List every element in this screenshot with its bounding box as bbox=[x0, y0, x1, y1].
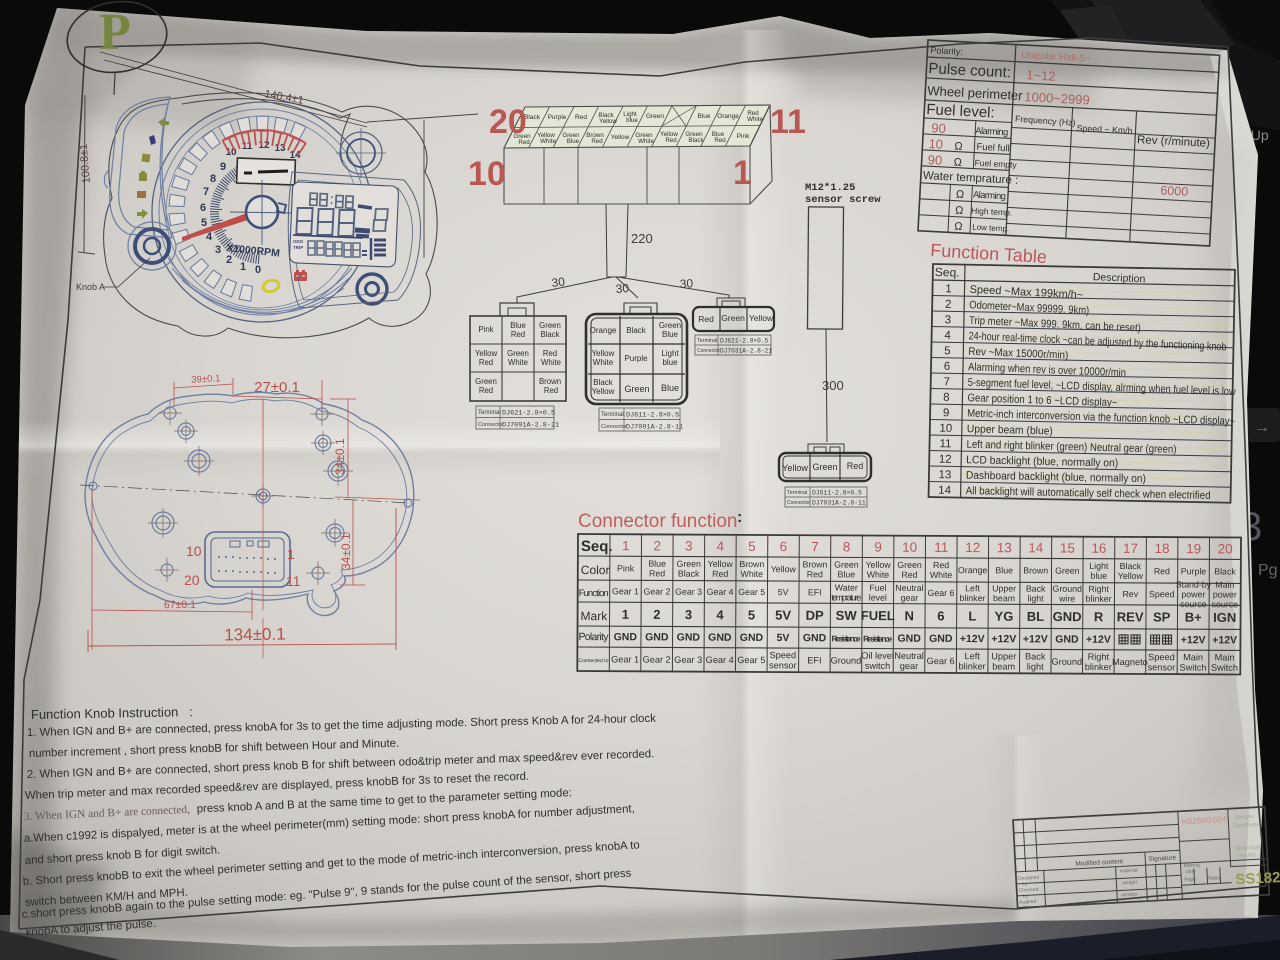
svg-text:White: White bbox=[867, 570, 890, 580]
svg-text:GND: GND bbox=[677, 632, 701, 644]
svg-text:DJ7031A-2.8-21: DJ7031A-2.8-21 bbox=[720, 348, 772, 355]
svg-text:Gear 3: Gear 3 bbox=[674, 655, 702, 665]
svg-text:EFI: EFI bbox=[808, 587, 822, 597]
svg-text:Yellow: Yellow bbox=[611, 134, 630, 141]
svg-text:Switch: Switch bbox=[1211, 663, 1238, 673]
svg-text:Red: Red bbox=[479, 386, 493, 395]
svg-text:1: 1 bbox=[287, 546, 295, 562]
svg-text:beam: beam bbox=[992, 661, 1015, 671]
svg-text:27±0.1: 27±0.1 bbox=[254, 379, 300, 396]
svg-text:1: 1 bbox=[945, 283, 952, 295]
svg-text:beam: beam bbox=[993, 593, 1015, 603]
svg-text:12: 12 bbox=[258, 140, 270, 151]
svg-text:Ω: Ω bbox=[956, 189, 965, 201]
svg-text:Pink: Pink bbox=[478, 325, 493, 334]
svg-text:Connector: Connector bbox=[601, 424, 627, 430]
svg-text:Blue: Blue bbox=[510, 321, 526, 330]
svg-text:REV: REV bbox=[1117, 609, 1144, 624]
svg-text:Right: Right bbox=[1088, 584, 1109, 594]
svg-text:39±0.1: 39±0.1 bbox=[191, 373, 221, 386]
svg-text:10: 10 bbox=[939, 423, 952, 435]
svg-text:5V: 5V bbox=[775, 608, 791, 623]
svg-text:Neutral: Neutral bbox=[895, 583, 923, 593]
svg-text:White: White bbox=[741, 569, 764, 579]
svg-text:18: 18 bbox=[1154, 541, 1169, 556]
svg-text:Yellow: Yellow bbox=[708, 559, 734, 569]
svg-text:gear: gear bbox=[900, 661, 918, 671]
svg-text:3: 3 bbox=[215, 244, 221, 256]
svg-text:P: P bbox=[99, 4, 131, 61]
svg-text:M12*1.25: M12*1.25 bbox=[805, 182, 855, 194]
svg-text:19: 19 bbox=[1186, 541, 1201, 556]
svg-text:Brown: Brown bbox=[739, 559, 764, 569]
svg-text:FUEL: FUEL bbox=[861, 608, 895, 623]
svg-text:Ground: Ground bbox=[831, 656, 862, 666]
svg-text:134±0.1: 134±0.1 bbox=[224, 624, 286, 644]
svg-text:Terminal: Terminal bbox=[601, 412, 624, 418]
svg-text:Black: Black bbox=[540, 330, 559, 339]
svg-text:2: 2 bbox=[653, 538, 661, 553]
svg-text:power: power bbox=[1213, 589, 1237, 599]
svg-text:temprature: temprature bbox=[831, 592, 861, 602]
svg-text:Magneto: Magneto bbox=[1112, 657, 1148, 667]
svg-text:EFI: EFI bbox=[807, 655, 821, 665]
svg-text:Description: Description bbox=[1093, 271, 1146, 285]
svg-text:sensor: sensor bbox=[1148, 662, 1176, 672]
svg-text:White: White bbox=[593, 358, 614, 367]
svg-text:3: 3 bbox=[685, 539, 693, 554]
svg-text:Orange: Orange bbox=[717, 113, 739, 120]
svg-text:+12V: +12V bbox=[1212, 634, 1237, 646]
svg-text:6: 6 bbox=[780, 539, 788, 554]
svg-text:Polarity:: Polarity: bbox=[930, 45, 963, 57]
svg-text:Brown: Brown bbox=[1023, 565, 1048, 575]
svg-text:Resisitance: Resisitance bbox=[863, 634, 892, 643]
svg-text:SP: SP bbox=[1153, 610, 1171, 625]
svg-text:1: 1 bbox=[622, 607, 629, 622]
svg-text:10: 10 bbox=[902, 540, 917, 555]
svg-text:Upper: Upper bbox=[992, 583, 1016, 593]
svg-text:4: 4 bbox=[717, 539, 725, 554]
svg-text:Connector function: Connector function bbox=[578, 511, 738, 532]
svg-text:YG: YG bbox=[995, 609, 1014, 624]
svg-text:Light: Light bbox=[1089, 561, 1109, 571]
svg-text:SW: SW bbox=[836, 608, 858, 623]
svg-text:Green: Green bbox=[812, 462, 837, 472]
svg-text:+12V: +12V bbox=[1181, 634, 1206, 646]
svg-text:Left: Left bbox=[965, 583, 980, 593]
svg-text:90: 90 bbox=[931, 120, 946, 136]
svg-text:date: date bbox=[1186, 869, 1196, 876]
svg-text:Neutral: Neutral bbox=[894, 651, 924, 661]
svg-text:Yellow: Yellow bbox=[771, 564, 797, 574]
svg-text:Black: Black bbox=[593, 378, 614, 387]
svg-text:Green: Green bbox=[1055, 566, 1080, 576]
svg-text:Gear 2: Gear 2 bbox=[643, 655, 671, 665]
svg-text:Rev: Rev bbox=[1122, 589, 1138, 599]
svg-text:Fuel level:: Fuel level: bbox=[926, 101, 995, 122]
svg-text:15: 15 bbox=[1060, 541, 1075, 556]
svg-text:blue: blue bbox=[662, 358, 678, 367]
svg-text:light: light bbox=[1027, 662, 1044, 672]
svg-text:Blue: Blue bbox=[648, 559, 666, 569]
svg-text:Red: Red bbox=[698, 314, 714, 324]
svg-text:Gear 3: Gear 3 bbox=[675, 587, 702, 597]
svg-text:Mark: Mark bbox=[581, 609, 609, 623]
svg-text:11: 11 bbox=[770, 103, 806, 141]
svg-text:7: 7 bbox=[943, 376, 950, 388]
svg-text:Upper: Upper bbox=[991, 651, 1016, 661]
svg-text:3: 3 bbox=[685, 607, 692, 622]
svg-text:→: → bbox=[1254, 419, 1270, 436]
svg-text:Blue: Blue bbox=[661, 383, 679, 393]
svg-text:blue: blue bbox=[626, 117, 638, 124]
svg-text:light: light bbox=[1027, 593, 1044, 603]
svg-text:Brown: Brown bbox=[802, 559, 827, 569]
svg-text:8: 8 bbox=[210, 173, 216, 185]
svg-text:Brown: Brown bbox=[539, 377, 561, 386]
svg-text:White: White bbox=[541, 358, 561, 367]
svg-text:Gear 1: Gear 1 bbox=[612, 586, 639, 596]
svg-text:power: power bbox=[1181, 589, 1205, 599]
svg-text:Red: Red bbox=[847, 461, 864, 471]
svg-text:Blue: Blue bbox=[697, 113, 710, 120]
svg-text:Black: Black bbox=[626, 326, 647, 335]
svg-text:Yellow: Yellow bbox=[1118, 571, 1144, 581]
svg-text:by: by bbox=[1023, 904, 1029, 910]
svg-text:11: 11 bbox=[286, 573, 301, 589]
svg-text:3: 3 bbox=[945, 314, 952, 326]
svg-text:Resisitance: Resisitance bbox=[832, 634, 861, 643]
svg-text:Connector: Connector bbox=[697, 348, 720, 354]
svg-text:Green: Green bbox=[624, 384, 649, 394]
svg-text:Gear 6: Gear 6 bbox=[927, 656, 955, 666]
svg-text:Checked: Checked bbox=[1019, 887, 1039, 894]
svg-text:Red: Red bbox=[511, 330, 525, 339]
svg-text:Green: Green bbox=[659, 321, 681, 330]
svg-text:Function Knob Instruction :: Function Knob Instruction : bbox=[31, 704, 193, 722]
svg-text:Gear 5: Gear 5 bbox=[738, 587, 765, 597]
svg-text:Yellow: Yellow bbox=[749, 313, 774, 323]
svg-text:Left: Left bbox=[964, 651, 980, 661]
svg-text:+12V: +12V bbox=[1023, 633, 1048, 645]
svg-text:6: 6 bbox=[944, 361, 951, 373]
svg-text:Red: Red bbox=[714, 137, 726, 144]
svg-text:Signature: Signature bbox=[1148, 855, 1177, 863]
svg-text:16: 16 bbox=[1091, 541, 1106, 556]
svg-text:34±0.1: 34±0.1 bbox=[333, 438, 347, 475]
svg-text:Seq.: Seq. bbox=[935, 265, 960, 279]
svg-text:Stand-by: Stand-by bbox=[1176, 579, 1212, 589]
svg-text:Black: Black bbox=[1214, 566, 1236, 576]
svg-text:White: White bbox=[930, 570, 953, 580]
svg-text:+12V: +12V bbox=[991, 633, 1016, 645]
svg-text:20: 20 bbox=[489, 103, 527, 141]
svg-text:Yellow: Yellow bbox=[592, 349, 615, 358]
svg-text:Yellow: Yellow bbox=[782, 463, 808, 473]
svg-text:Green: Green bbox=[721, 313, 745, 323]
svg-text:30: 30 bbox=[551, 275, 566, 290]
svg-text:Designed: Designed bbox=[1018, 875, 1040, 882]
svg-text:GND: GND bbox=[1053, 609, 1082, 624]
svg-text:7: 7 bbox=[811, 539, 819, 554]
svg-text:6000: 6000 bbox=[1160, 183, 1189, 198]
svg-text:blinker: blinker bbox=[959, 593, 985, 603]
svg-text:Speed: Speed bbox=[1149, 589, 1175, 599]
svg-text:Back: Back bbox=[1025, 651, 1046, 661]
svg-text:level: level bbox=[869, 593, 887, 603]
svg-text:Function: Function bbox=[579, 588, 609, 599]
svg-text:9: 9 bbox=[874, 540, 882, 555]
svg-text:Orange: Orange bbox=[958, 565, 988, 575]
svg-text:34±0.1: 34±0.1 bbox=[339, 533, 353, 570]
svg-text:Knob A: Knob A bbox=[76, 282, 105, 292]
svg-text:Red: Red bbox=[544, 386, 558, 395]
svg-text:Pink: Pink bbox=[737, 133, 750, 140]
svg-text:Switch: Switch bbox=[1179, 662, 1206, 672]
svg-text:Back: Back bbox=[1026, 584, 1046, 594]
svg-text:GND: GND bbox=[740, 632, 764, 644]
svg-text:GND: GND bbox=[708, 632, 732, 644]
svg-text:switch: switch bbox=[865, 661, 891, 671]
svg-text:wire: wire bbox=[1058, 594, 1075, 604]
svg-text:source: source bbox=[1212, 599, 1239, 609]
svg-text:Red: Red bbox=[479, 358, 493, 367]
svg-text:Polarity: Polarity bbox=[578, 631, 609, 643]
svg-text:DJ7091A-2.8-21: DJ7091A-2.8-21 bbox=[502, 422, 559, 430]
svg-text:SS182: SS182 bbox=[1235, 869, 1280, 888]
svg-text:9: 9 bbox=[943, 407, 950, 419]
svg-text:Purple: Purple bbox=[624, 354, 648, 363]
svg-text:require: require bbox=[1237, 852, 1257, 859]
svg-text:30: 30 bbox=[679, 276, 693, 291]
svg-text:5: 5 bbox=[201, 217, 207, 229]
svg-text:weight: weight bbox=[1122, 880, 1137, 887]
svg-text:Red: Red bbox=[649, 568, 665, 578]
svg-text:13: 13 bbox=[938, 469, 951, 481]
svg-text:Ω: Ω bbox=[954, 221, 963, 233]
svg-text:DJ621-2.8×0.5: DJ621-2.8×0.5 bbox=[720, 338, 769, 345]
svg-text:300: 300 bbox=[822, 378, 844, 393]
svg-text:7: 7 bbox=[203, 186, 209, 198]
svg-text:Seq.: Seq. bbox=[581, 538, 613, 555]
svg-text:Connector: Connector bbox=[478, 422, 504, 428]
svg-text:IGN: IGN bbox=[1213, 610, 1236, 625]
svg-text:220: 220 bbox=[631, 231, 653, 246]
svg-text:Connected to: Connected to bbox=[578, 658, 608, 664]
svg-text:Green: Green bbox=[539, 321, 561, 330]
svg-text:blue: blue bbox=[1090, 571, 1107, 581]
svg-text:B+: B+ bbox=[1185, 610, 1202, 625]
svg-text:2: 2 bbox=[653, 607, 660, 622]
svg-text:4: 4 bbox=[944, 330, 951, 342]
svg-text:sensor screw: sensor screw bbox=[805, 194, 881, 206]
svg-text:Green: Green bbox=[646, 113, 664, 120]
svg-text:Page: Page bbox=[1184, 876, 1196, 883]
svg-text:Blue: Blue bbox=[662, 330, 679, 339]
svg-text:Light: Light bbox=[661, 349, 679, 358]
svg-text:Speed: Speed bbox=[1148, 652, 1175, 662]
svg-text:DJ621-2.8×0.5: DJ621-2.8×0.5 bbox=[502, 410, 555, 418]
svg-text:Black: Black bbox=[688, 137, 704, 144]
svg-text:5V: 5V bbox=[778, 587, 789, 597]
svg-text:R: R bbox=[1094, 609, 1104, 624]
svg-text:source: source bbox=[1180, 599, 1207, 609]
svg-text:8: 8 bbox=[943, 392, 950, 404]
svg-text:Gear 6: Gear 6 bbox=[928, 588, 955, 598]
svg-text:GND: GND bbox=[929, 633, 953, 645]
svg-text:Red: Red bbox=[1154, 566, 1170, 576]
svg-text:Gear 5: Gear 5 bbox=[737, 655, 765, 665]
svg-text:Speed: Speed bbox=[770, 650, 797, 660]
svg-text:Green: Green bbox=[834, 560, 859, 570]
svg-text:Pg: Pg bbox=[1258, 562, 1278, 579]
svg-text:Blue: Blue bbox=[838, 569, 856, 579]
svg-text:5V: 5V bbox=[777, 632, 790, 644]
svg-text:Gear 1: Gear 1 bbox=[611, 654, 639, 664]
svg-text:6: 6 bbox=[937, 608, 944, 623]
svg-text:Gear 4: Gear 4 bbox=[707, 587, 734, 597]
svg-text:Red: Red bbox=[933, 560, 949, 570]
svg-text:Alarming: Alarming bbox=[973, 190, 1007, 203]
svg-text:BL: BL bbox=[1027, 609, 1044, 624]
svg-text:DJ611-2.8×0.5: DJ611-2.8×0.5 bbox=[812, 490, 862, 497]
svg-text:5: 5 bbox=[944, 345, 951, 357]
svg-text:14: 14 bbox=[1028, 540, 1044, 555]
svg-text:Green: Green bbox=[475, 377, 497, 386]
svg-text:12: 12 bbox=[965, 540, 980, 555]
svg-text:blinker: blinker bbox=[1086, 594, 1112, 604]
svg-text:GND: GND bbox=[645, 631, 669, 643]
svg-text:20: 20 bbox=[184, 572, 200, 588]
svg-text:ODO: ODO bbox=[293, 239, 304, 244]
svg-text:blinker: blinker bbox=[1085, 662, 1112, 672]
svg-text::: : bbox=[737, 509, 742, 526]
svg-text:10: 10 bbox=[928, 136, 943, 152]
svg-text:Terminal: Terminal bbox=[478, 410, 501, 416]
svg-text:Ratio: Ratio bbox=[1208, 875, 1220, 882]
svg-text:Green: Green bbox=[897, 560, 922, 570]
svg-text:Main: Main bbox=[1215, 580, 1234, 590]
svg-text:N: N bbox=[905, 608, 914, 623]
svg-text:Green: Green bbox=[676, 559, 701, 569]
svg-text:14: 14 bbox=[938, 485, 952, 497]
svg-text:Fuel: Fuel bbox=[869, 583, 886, 593]
svg-text:Blue: Blue bbox=[995, 565, 1013, 575]
svg-text:Gear 2: Gear 2 bbox=[644, 586, 671, 596]
svg-text:10: 10 bbox=[186, 543, 202, 559]
svg-text:20: 20 bbox=[1218, 541, 1233, 556]
svg-text:Green: Green bbox=[507, 349, 529, 358]
svg-text:90: 90 bbox=[927, 152, 942, 168]
svg-text:Water: Water bbox=[835, 583, 858, 593]
svg-text:12: 12 bbox=[939, 454, 952, 466]
svg-text:10: 10 bbox=[468, 155, 506, 193]
svg-text:1: 1 bbox=[240, 261, 246, 273]
svg-text:Pink: Pink bbox=[617, 563, 635, 573]
svg-text:Black: Black bbox=[1120, 561, 1142, 571]
svg-text:Gear 4: Gear 4 bbox=[706, 655, 734, 665]
svg-text:version: version bbox=[1121, 892, 1138, 899]
svg-text:2: 2 bbox=[226, 254, 232, 266]
svg-text:Red: Red bbox=[543, 349, 557, 358]
svg-text:material: material bbox=[1120, 868, 1138, 875]
svg-text:White: White bbox=[638, 138, 654, 145]
svg-text:Yellow: Yellow bbox=[865, 560, 891, 570]
svg-text:L: L bbox=[968, 609, 976, 624]
svg-text:9: 9 bbox=[220, 161, 226, 173]
svg-text:Terminal: Terminal bbox=[697, 338, 717, 344]
svg-text:Purple: Purple bbox=[1181, 566, 1207, 576]
svg-text:Alarming: Alarming bbox=[975, 126, 1009, 139]
svg-text:DJ7091A-2.8-11: DJ7091A-2.8-11 bbox=[626, 424, 683, 432]
svg-text:Red: Red bbox=[712, 569, 728, 579]
svg-text:Ground: Ground bbox=[1053, 584, 1083, 594]
svg-text:GND: GND bbox=[897, 633, 921, 645]
svg-text:GND: GND bbox=[614, 631, 638, 643]
svg-text:blinker: blinker bbox=[959, 661, 986, 671]
svg-text:Blue: Blue bbox=[567, 138, 580, 145]
svg-text:Red: Red bbox=[665, 137, 677, 144]
svg-text:17: 17 bbox=[1123, 541, 1138, 556]
svg-text:Yellow: Yellow bbox=[599, 118, 617, 125]
svg-text:Red: Red bbox=[591, 138, 603, 145]
svg-text:White: White bbox=[747, 116, 763, 123]
svg-text:Fuel full: Fuel full bbox=[976, 142, 1010, 155]
svg-text:White: White bbox=[540, 138, 556, 145]
svg-text:Ω: Ω bbox=[953, 157, 962, 169]
svg-text:Main: Main bbox=[1183, 652, 1203, 662]
svg-text:Red: Red bbox=[901, 570, 917, 580]
svg-text:Terminal: Terminal bbox=[787, 490, 807, 496]
svg-text:Upper beam (blue): Upper beam (blue) bbox=[967, 423, 1053, 437]
svg-text:Right: Right bbox=[1088, 652, 1110, 662]
svg-text:Color: Color bbox=[581, 563, 610, 577]
svg-text:Yellow: Yellow bbox=[475, 349, 498, 358]
svg-text:8: 8 bbox=[843, 539, 851, 554]
svg-text:4: 4 bbox=[716, 607, 724, 622]
svg-text:2: 2 bbox=[945, 299, 952, 311]
svg-text:sensor: sensor bbox=[769, 660, 797, 670]
svg-text:Red: Red bbox=[575, 114, 587, 121]
svg-text:67±0.1: 67±0.1 bbox=[164, 599, 196, 612]
svg-text:0: 0 bbox=[255, 264, 261, 276]
svg-text:1~12: 1~12 bbox=[1026, 67, 1056, 84]
svg-text:5: 5 bbox=[748, 607, 755, 622]
svg-text:11: 11 bbox=[934, 540, 948, 555]
svg-text:5: 5 bbox=[748, 539, 756, 554]
svg-text:Black: Black bbox=[678, 569, 700, 579]
svg-text:13: 13 bbox=[997, 540, 1012, 555]
svg-text:Orange: Orange bbox=[590, 326, 617, 335]
svg-text:11: 11 bbox=[939, 438, 951, 450]
svg-text:6: 6 bbox=[200, 202, 206, 214]
svg-text:TRIP: TRIP bbox=[293, 245, 303, 250]
svg-text:DJ7031A-2.8-11: DJ7031A-2.8-11 bbox=[812, 500, 866, 507]
svg-text:Main: Main bbox=[1215, 652, 1235, 662]
svg-text:gear: gear bbox=[901, 593, 919, 603]
svg-text:+12V: +12V bbox=[1086, 634, 1111, 646]
svg-text:Connector: Connector bbox=[787, 500, 810, 506]
svg-text:DP: DP bbox=[806, 608, 824, 623]
svg-text:DJ611-2.8×0.5: DJ611-2.8×0.5 bbox=[626, 412, 679, 420]
svg-text:Yellow: Yellow bbox=[592, 387, 615, 396]
svg-text:Purple: Purple bbox=[548, 114, 567, 121]
svg-text:GND: GND bbox=[1055, 634, 1079, 646]
svg-text:Red: Red bbox=[807, 569, 823, 579]
svg-text:GND: GND bbox=[803, 632, 827, 644]
svg-text:30: 30 bbox=[615, 281, 630, 296]
